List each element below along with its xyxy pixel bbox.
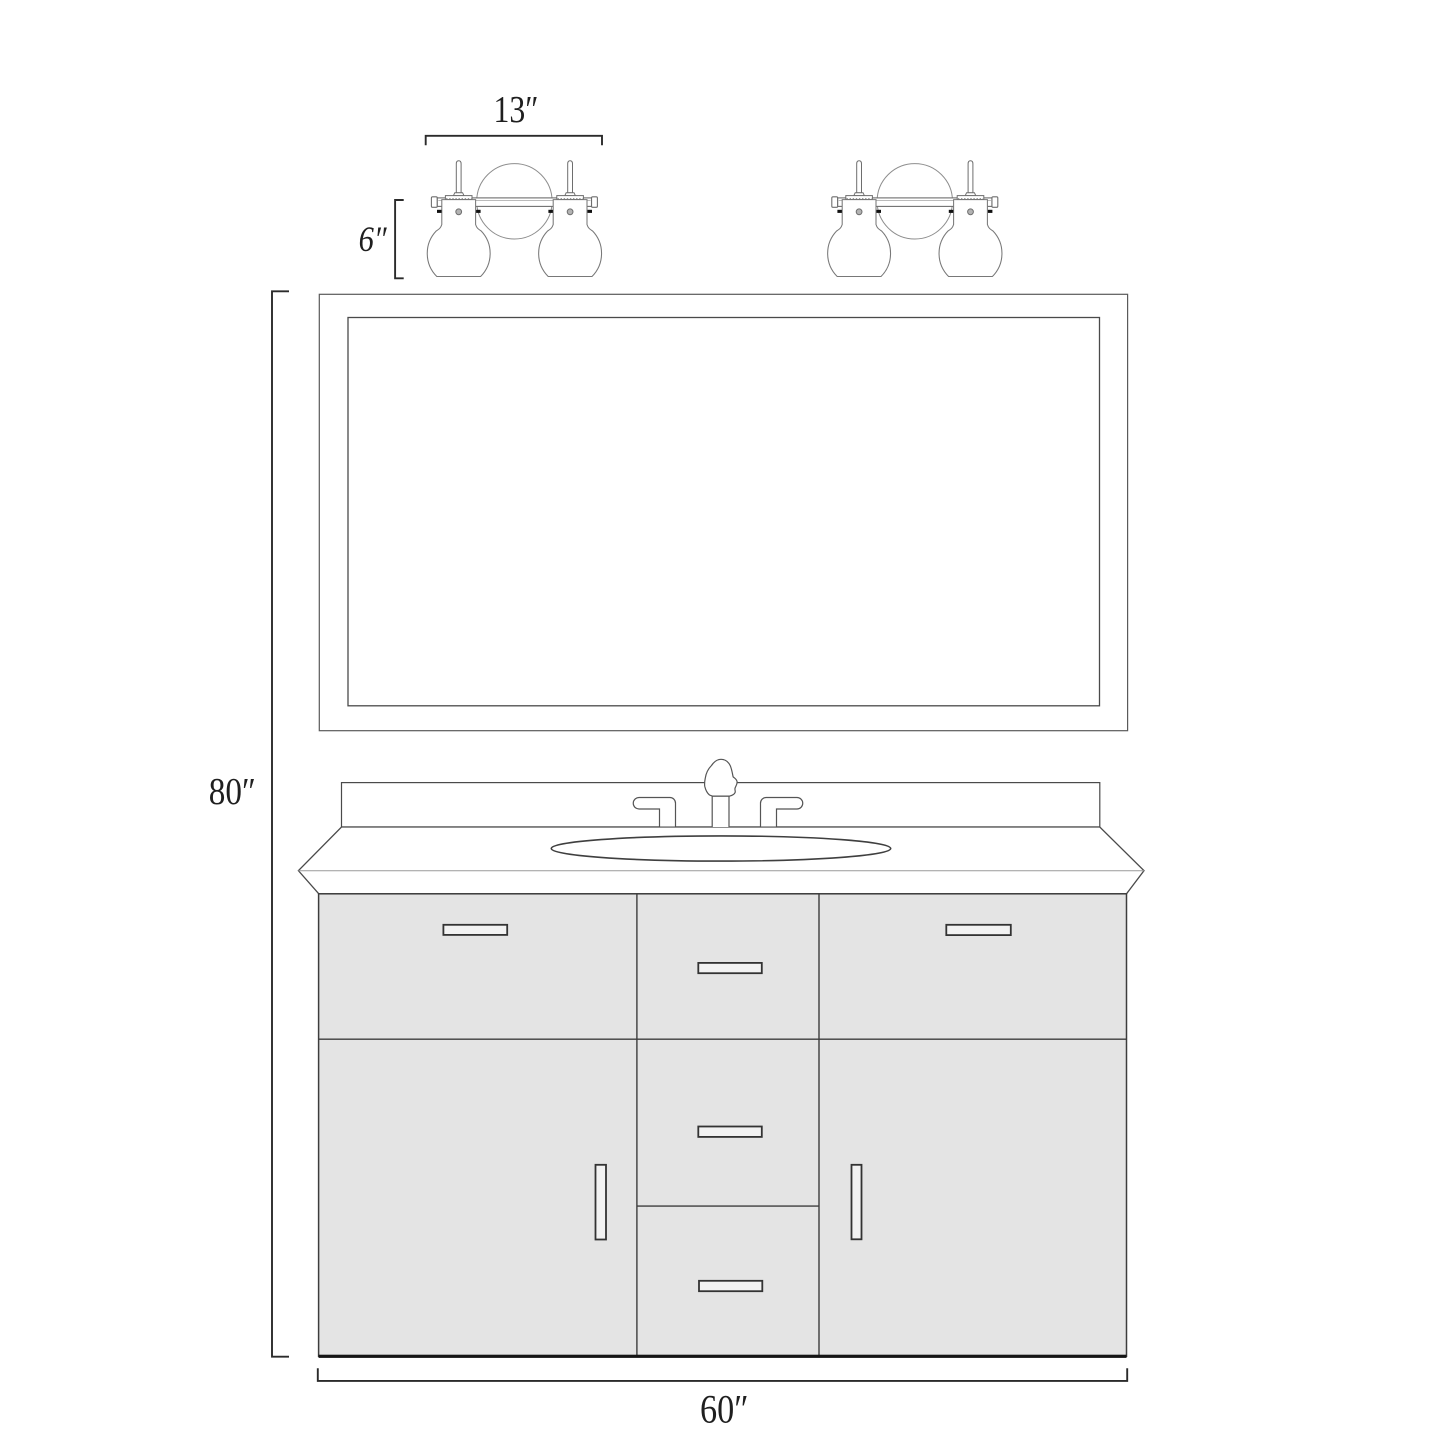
svg-text:80″: 80″	[209, 771, 256, 813]
svg-text:60″: 60″	[700, 1386, 749, 1431]
svg-text:6″: 6″	[359, 219, 388, 259]
svg-text:13″: 13″	[494, 89, 539, 131]
